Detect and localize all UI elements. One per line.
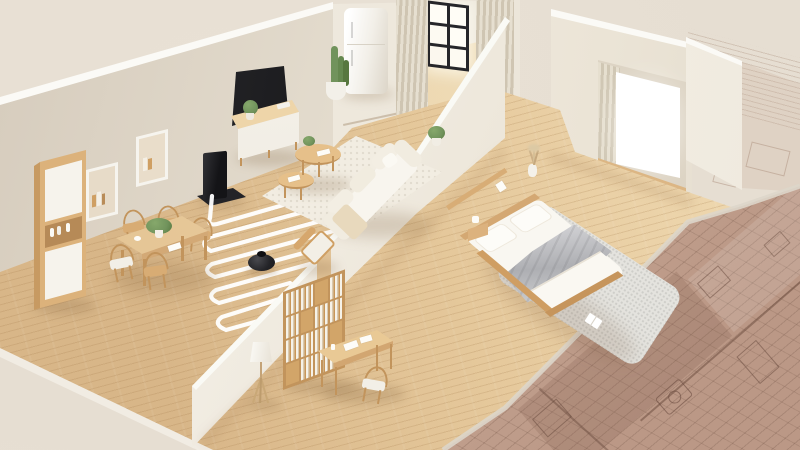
chair-leg (114, 268, 119, 282)
chair-leg (148, 276, 152, 290)
bookshelf-cell-books (286, 336, 299, 362)
lamp-shade (250, 342, 272, 362)
bookshelf-cell-door (286, 360, 299, 386)
bookshelf-cell-door (301, 308, 314, 334)
bookshelf-cell-door (330, 321, 343, 347)
bookshelf-cell-books (330, 297, 343, 323)
bookshelf-cell-books (315, 302, 328, 328)
shelf-bottle (50, 228, 54, 237)
coffee-table-plant (303, 136, 315, 146)
scene (0, 0, 800, 450)
coffee-table-leg (300, 188, 302, 200)
bookshelf-cell-books (301, 284, 314, 310)
table-book (288, 175, 301, 183)
coffee-table-leg (284, 186, 286, 198)
nightstand-clock (472, 216, 479, 223)
bookshelf-cell-books (301, 331, 314, 357)
pampas-fluff (528, 144, 540, 152)
book-spine (590, 317, 596, 326)
coffee-table-leg (332, 156, 334, 171)
chair-leg (377, 390, 381, 404)
bookshelf-cell-books (286, 313, 299, 339)
chair-leg (162, 274, 166, 288)
chair-leg (128, 265, 133, 279)
coffee-table-leg (302, 160, 304, 175)
bookshelf-cell-door (315, 279, 328, 305)
pampas-vase (528, 164, 537, 177)
floor-lamp (246, 340, 282, 410)
dining-plant-vase (155, 230, 163, 238)
shelf-bottle (57, 226, 61, 235)
desk-leg (335, 367, 337, 395)
shelf-plant-pot (432, 138, 441, 146)
table-book (317, 149, 331, 157)
teapot (134, 236, 141, 241)
table-leg (204, 236, 207, 260)
lamp-leg (259, 378, 262, 403)
desk-leg (390, 344, 392, 369)
bookshelf-cell-books (301, 355, 314, 381)
bookshelf-cell-books (315, 326, 328, 352)
table-leg (181, 236, 184, 261)
robot-lidar (257, 251, 266, 257)
chair-leg (362, 387, 366, 401)
robot-vacuum (248, 254, 275, 271)
desk-leg (321, 360, 323, 387)
desk-pen-holder (331, 344, 335, 350)
coffee-table-leg (318, 162, 320, 177)
bookshelf-cell-books (286, 289, 299, 315)
bookshelf-cell-books (330, 274, 343, 300)
shelf-bottle (66, 223, 70, 232)
